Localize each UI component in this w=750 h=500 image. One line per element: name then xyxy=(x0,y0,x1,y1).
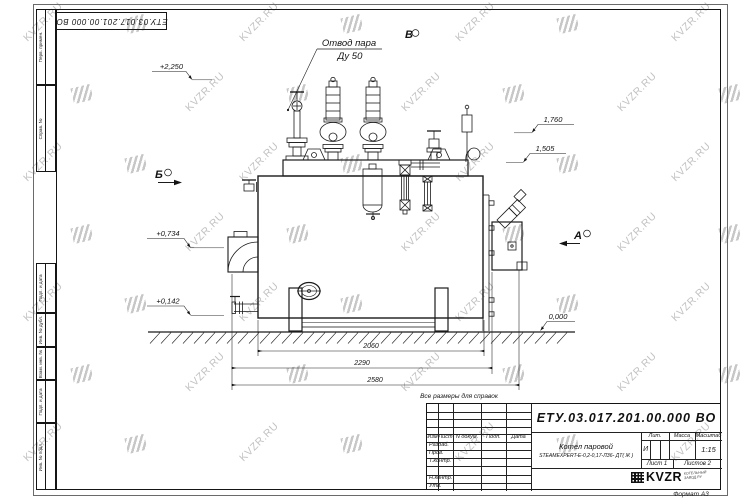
view-label-a: А xyxy=(573,230,582,242)
col-list: Лист xyxy=(438,434,453,442)
elev-1505: 1,505 xyxy=(536,144,556,153)
platform-valve xyxy=(427,131,441,160)
elev-0142: +0,142 xyxy=(156,297,180,306)
row-nkontr: Н.контр. xyxy=(427,475,455,483)
elev-0734: +0,734 xyxy=(156,229,179,238)
row-prov: Пров. xyxy=(427,450,455,458)
mass-label: Масса xyxy=(669,433,695,440)
reference-note: Все размеры для справок xyxy=(420,392,499,400)
dimension-lines xyxy=(232,270,519,390)
row-tkontr: Т.контр. xyxy=(427,458,455,466)
level-electrode xyxy=(462,105,472,160)
product-name-line2: STEAMEXPERT-E-0,2-0,17-ЛЗ6- ДТ( Ж ) xyxy=(539,453,633,459)
safety-valve-1 xyxy=(320,77,346,160)
steam-outlet-callout: Отвод пара Ду 50 xyxy=(287,38,382,111)
manhole xyxy=(297,283,321,300)
boiler-linework xyxy=(148,77,575,343)
view-circle-icon xyxy=(584,230,591,237)
left-fittings xyxy=(228,180,258,314)
dim-2580: 2580 xyxy=(366,377,383,384)
view-circle-icon xyxy=(165,169,172,176)
elevation-marks xyxy=(147,72,575,331)
water-level-gauge xyxy=(399,160,411,214)
logo-subtext: КОТЕЛЬНЫЙ ЗАВОД.РУ xyxy=(684,471,707,481)
elev-1760: 1,760 xyxy=(544,115,564,124)
sheets-cell: Листов 2 xyxy=(673,459,722,468)
logo-text: KVZR xyxy=(646,470,682,484)
col-date: Дата xyxy=(506,434,531,442)
smoke-door xyxy=(492,190,527,271)
callout-line2: Ду 50 xyxy=(337,51,363,62)
doc-number: ЕТУ.03.017.201.00.000 ВО xyxy=(531,404,722,432)
gauge-glass xyxy=(423,176,432,211)
row-razrab: Разраб. xyxy=(427,442,455,450)
row-utv: Утв. xyxy=(427,483,455,491)
view-circle-icon xyxy=(412,30,419,37)
lit-label: Лит. xyxy=(641,433,669,440)
scale-value: 1:15 xyxy=(695,440,722,459)
elev-0000: 0,000 xyxy=(549,312,569,321)
col-izm: Изм xyxy=(427,434,438,442)
view-arrow-left-icon xyxy=(559,241,567,246)
dim-2060: 2060 xyxy=(362,343,379,350)
view-label-b: Б xyxy=(155,169,163,181)
kvzr-hash-icon xyxy=(631,472,644,483)
scale-label: Масштаб xyxy=(695,433,722,440)
support-skid xyxy=(289,288,448,331)
separator-column xyxy=(363,164,382,220)
sheet-cell: Лист 1 xyxy=(641,459,673,468)
product-name-line1: Котел паровой xyxy=(559,442,613,451)
view-label-v: В xyxy=(405,29,413,41)
format-note: Формат А3 xyxy=(656,491,726,498)
product-name: Котел паровой STEAMEXPERT-E-0,2-0,17-ЛЗ6… xyxy=(531,432,641,468)
title-block: Изм Лист N докум. Подп. Дата Разраб. Про… xyxy=(426,403,721,490)
elev-2250: +2,250 xyxy=(160,62,184,71)
callout-line1: Отвод пара xyxy=(322,38,376,49)
lit-value: И xyxy=(641,440,650,459)
drawing-sheet: KVZR.RUKVZR.RUKVZR.RUKVZR.RUKVZR.RUKVZR.… xyxy=(0,0,750,500)
col-ndoc: N докум. xyxy=(453,434,481,442)
dim-2290: 2290 xyxy=(353,360,370,367)
col-podp: Подп. xyxy=(481,434,506,442)
company-logo: KVZR КОТЕЛЬНЫЙ ЗАВОД.РУ xyxy=(631,470,716,484)
safety-valve-2 xyxy=(360,77,386,160)
view-arrow-right-icon xyxy=(174,180,182,185)
steam-outlet-valve xyxy=(286,92,308,160)
